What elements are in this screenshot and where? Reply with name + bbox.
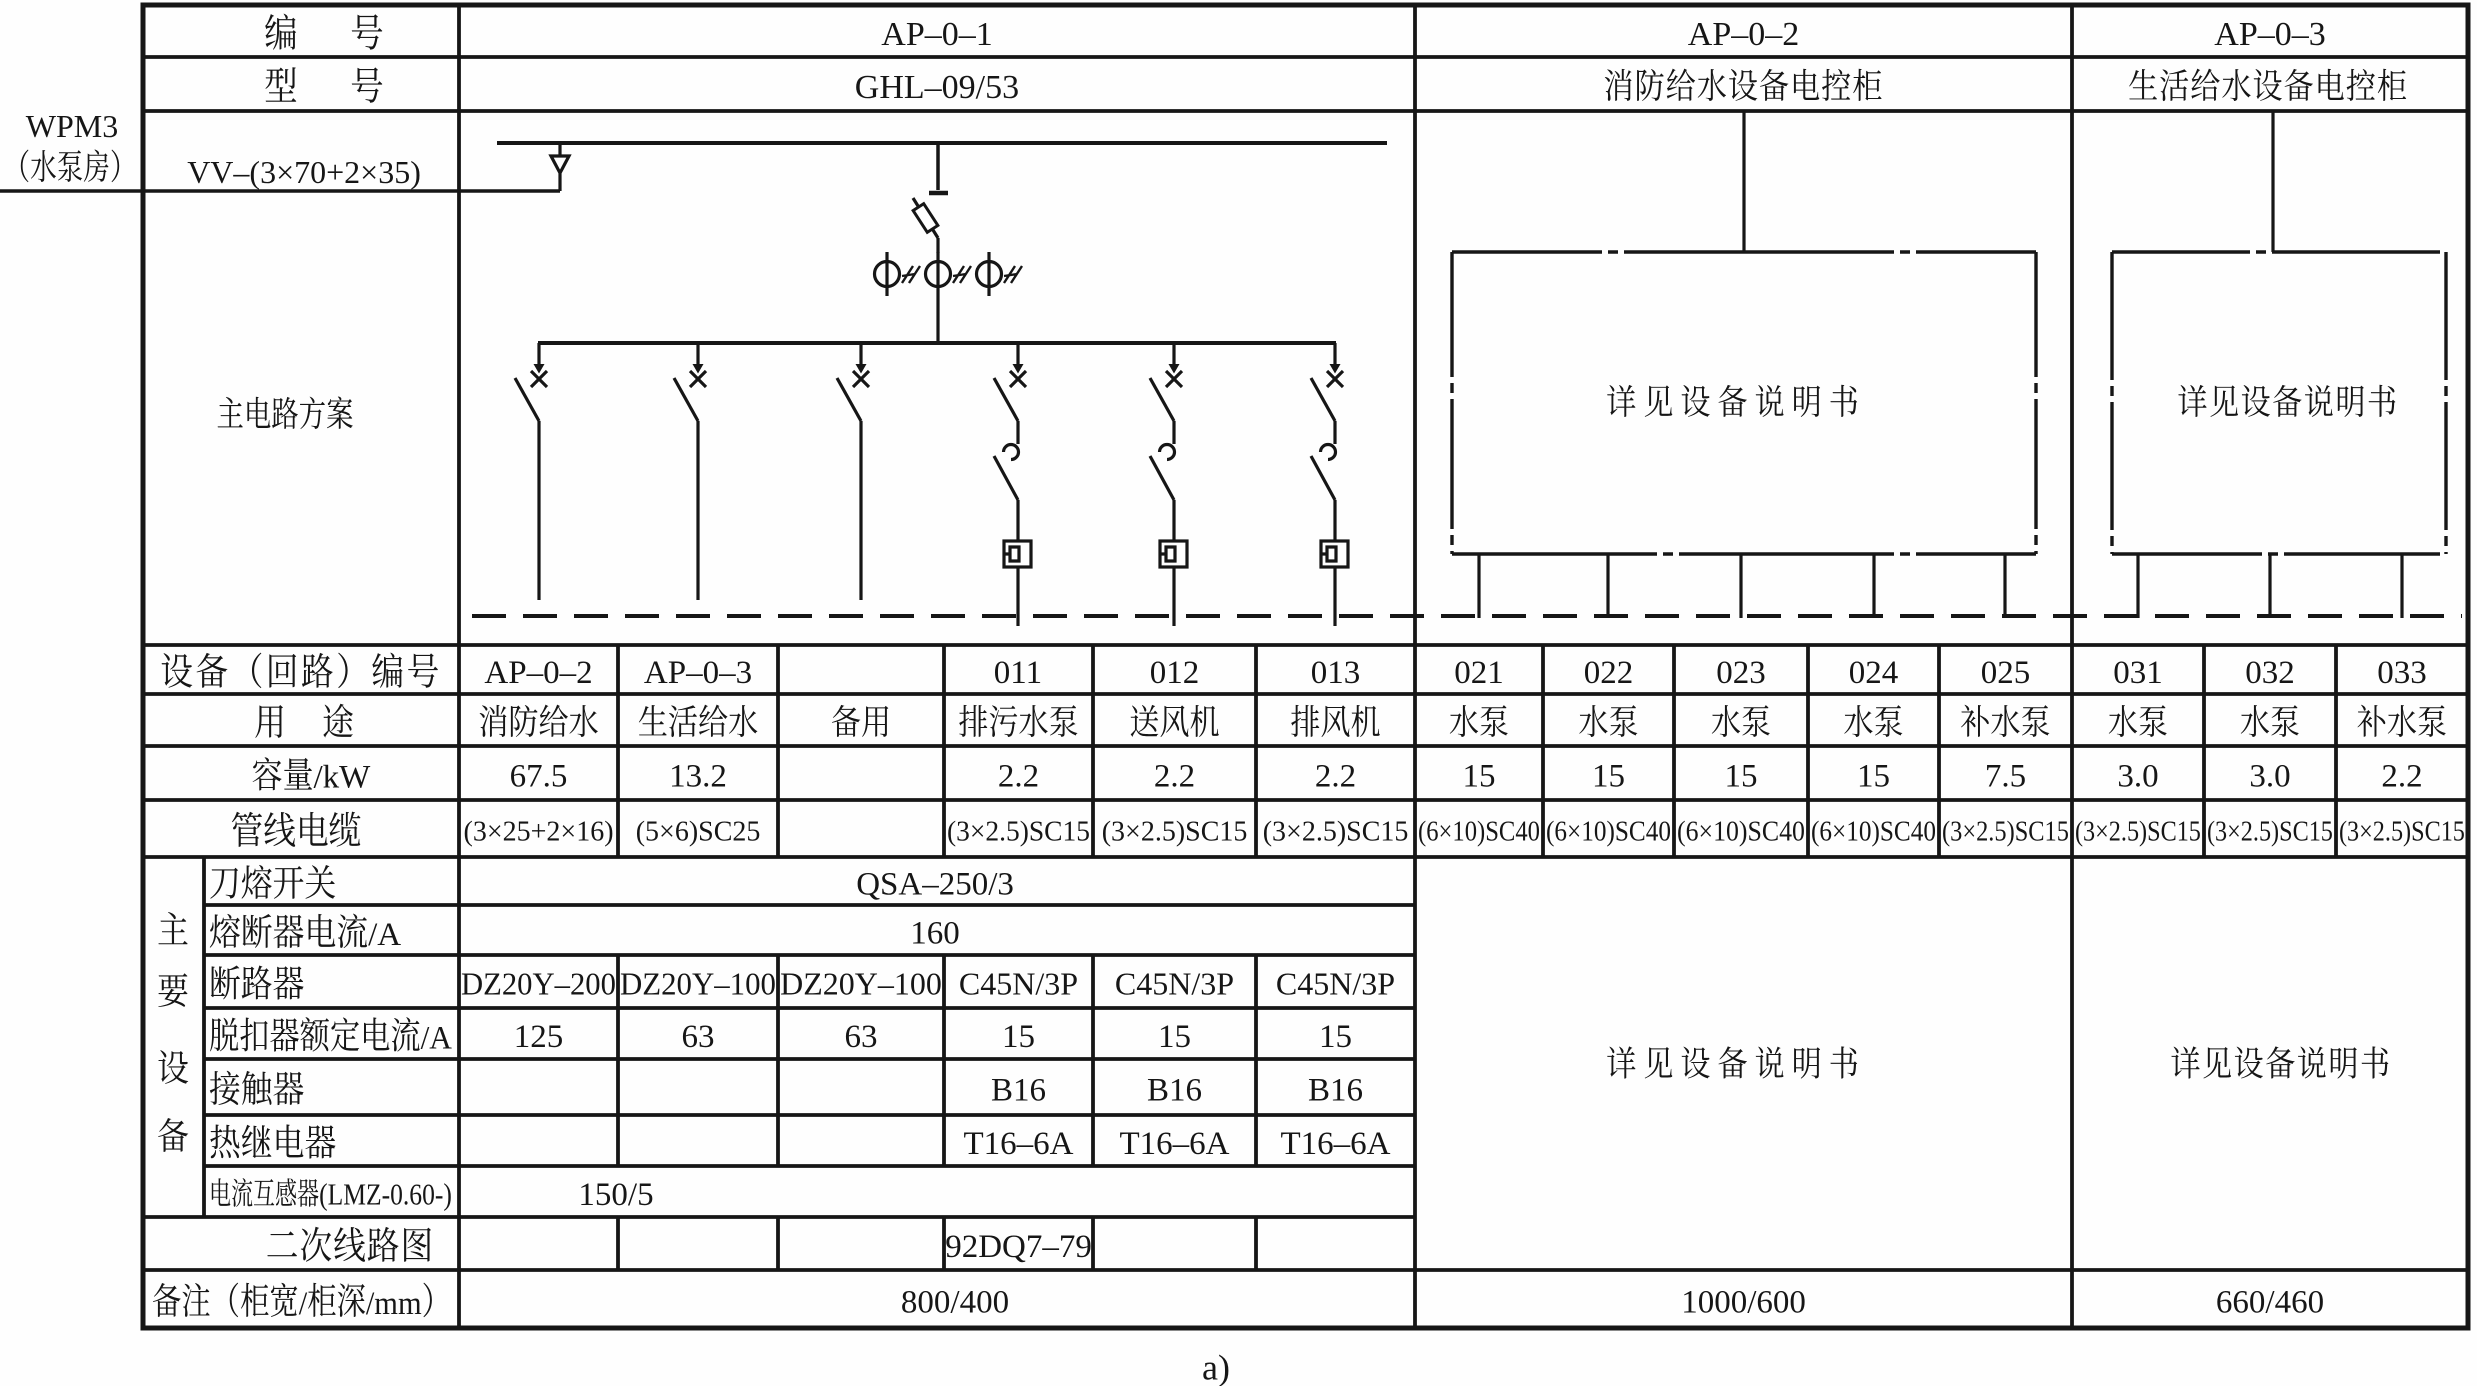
svg-text:7.5: 7.5 bbox=[1985, 759, 2026, 795]
svg-text:T16–6A: T16–6A bbox=[1120, 1126, 1230, 1162]
svg-text:(6×10)SC40: (6×10)SC40 bbox=[1677, 815, 1805, 846]
svg-text:025: 025 bbox=[1981, 655, 2031, 691]
svg-text:15: 15 bbox=[1857, 759, 1890, 795]
svg-text:(3×2.5)SC15: (3×2.5)SC15 bbox=[947, 816, 1090, 847]
svg-text:13.2: 13.2 bbox=[669, 759, 727, 795]
svg-text:VV–(3×70+2×35): VV–(3×70+2×35) bbox=[187, 154, 421, 190]
svg-text:(3×2.5)SC15: (3×2.5)SC15 bbox=[2339, 816, 2465, 847]
svg-text:/: / bbox=[299, 1285, 308, 1321]
svg-text:15: 15 bbox=[1725, 759, 1758, 795]
svg-text:WPM3: WPM3 bbox=[26, 108, 118, 144]
svg-text:033: 033 bbox=[2377, 655, 2427, 691]
svg-text:2.2: 2.2 bbox=[998, 759, 1039, 795]
svg-text:/A: /A bbox=[368, 917, 401, 953]
svg-text:15: 15 bbox=[1319, 1019, 1352, 1055]
svg-text:012: 012 bbox=[1150, 655, 1200, 691]
svg-text:C45N/3P: C45N/3P bbox=[959, 966, 1078, 1002]
svg-text:T16–6A: T16–6A bbox=[964, 1126, 1074, 1162]
svg-text:15: 15 bbox=[1158, 1019, 1191, 1055]
svg-text:(3×2.5)SC15: (3×2.5)SC15 bbox=[1102, 816, 1248, 847]
svg-text:/kW: /kW bbox=[314, 760, 372, 796]
svg-text:(3×2.5)SC15: (3×2.5)SC15 bbox=[1263, 816, 1409, 847]
svg-text:150/5: 150/5 bbox=[578, 1177, 653, 1213]
svg-text:(LMZ-0.60-): (LMZ-0.60-) bbox=[319, 1178, 452, 1212]
svg-text:67.5: 67.5 bbox=[510, 759, 568, 795]
svg-text:GHL–09/53: GHL–09/53 bbox=[855, 69, 1019, 106]
svg-text:011: 011 bbox=[994, 655, 1042, 691]
svg-text:DZ20Y–100: DZ20Y–100 bbox=[620, 966, 776, 1002]
svg-text:660/460: 660/460 bbox=[2216, 1285, 2324, 1321]
svg-text:63: 63 bbox=[682, 1019, 715, 1055]
svg-text:013: 013 bbox=[1311, 655, 1361, 691]
svg-text:(3×2.5)SC15: (3×2.5)SC15 bbox=[2207, 816, 2333, 847]
svg-text:032: 032 bbox=[2245, 655, 2295, 691]
svg-text:022: 022 bbox=[1584, 655, 1634, 691]
svg-text:3.0: 3.0 bbox=[2249, 759, 2290, 795]
svg-text:AP–0–3: AP–0–3 bbox=[644, 655, 752, 691]
svg-text:3.0: 3.0 bbox=[2117, 759, 2158, 795]
svg-text:800/400: 800/400 bbox=[901, 1285, 1009, 1321]
svg-text:/mm: /mm bbox=[366, 1285, 422, 1321]
svg-text:DZ20Y–200: DZ20Y–200 bbox=[461, 966, 616, 1002]
svg-text:AP–0–2: AP–0–2 bbox=[484, 655, 592, 691]
svg-text:031: 031 bbox=[2113, 655, 2163, 691]
svg-text:(3×2.5)SC15: (3×2.5)SC15 bbox=[1942, 816, 2069, 847]
svg-text:a): a) bbox=[1202, 1348, 1230, 1386]
svg-text:2.2: 2.2 bbox=[1315, 759, 1356, 795]
svg-text:023: 023 bbox=[1716, 655, 1766, 691]
svg-text:AP–0–1: AP–0–1 bbox=[881, 16, 992, 53]
svg-text:(5×6)SC25: (5×6)SC25 bbox=[636, 816, 761, 847]
svg-text:(3×25+2×16): (3×25+2×16) bbox=[464, 816, 614, 847]
svg-text:T16–6A: T16–6A bbox=[1281, 1126, 1391, 1162]
svg-text:15: 15 bbox=[1463, 759, 1496, 795]
svg-text:B16: B16 bbox=[1308, 1073, 1363, 1109]
svg-text:AP–0–2: AP–0–2 bbox=[1688, 16, 1799, 53]
svg-text:15: 15 bbox=[1002, 1019, 1035, 1055]
svg-text:160: 160 bbox=[910, 916, 960, 952]
svg-text:021: 021 bbox=[1454, 655, 1504, 691]
svg-text:125: 125 bbox=[514, 1019, 564, 1055]
svg-text:QSA–250/3: QSA–250/3 bbox=[856, 867, 1014, 903]
svg-text:AP–0–3: AP–0–3 bbox=[2214, 16, 2325, 53]
svg-text:2.2: 2.2 bbox=[2381, 759, 2422, 795]
svg-text:(6×10)SC40: (6×10)SC40 bbox=[1811, 815, 1936, 847]
svg-text:(6×10)SC40: (6×10)SC40 bbox=[1546, 815, 1671, 847]
svg-text:C45N/3P: C45N/3P bbox=[1276, 966, 1395, 1002]
svg-text:1000/600: 1000/600 bbox=[1681, 1285, 1806, 1321]
svg-text:DZ20Y–100: DZ20Y–100 bbox=[780, 966, 942, 1002]
svg-text:63: 63 bbox=[845, 1019, 878, 1055]
svg-text:B16: B16 bbox=[991, 1073, 1046, 1109]
svg-text:024: 024 bbox=[1849, 655, 1899, 691]
svg-text:B16: B16 bbox=[1147, 1073, 1202, 1109]
svg-text:C45N/3P: C45N/3P bbox=[1115, 966, 1234, 1002]
svg-text:(6×10)SC40: (6×10)SC40 bbox=[1418, 816, 1540, 847]
svg-text:2.2: 2.2 bbox=[1154, 759, 1195, 795]
svg-text:(3×2.5)SC15: (3×2.5)SC15 bbox=[2075, 816, 2201, 847]
svg-text:15: 15 bbox=[1592, 759, 1625, 795]
svg-text:92DQ7–79: 92DQ7–79 bbox=[945, 1229, 1092, 1265]
svg-text:/A: /A bbox=[421, 1019, 452, 1056]
